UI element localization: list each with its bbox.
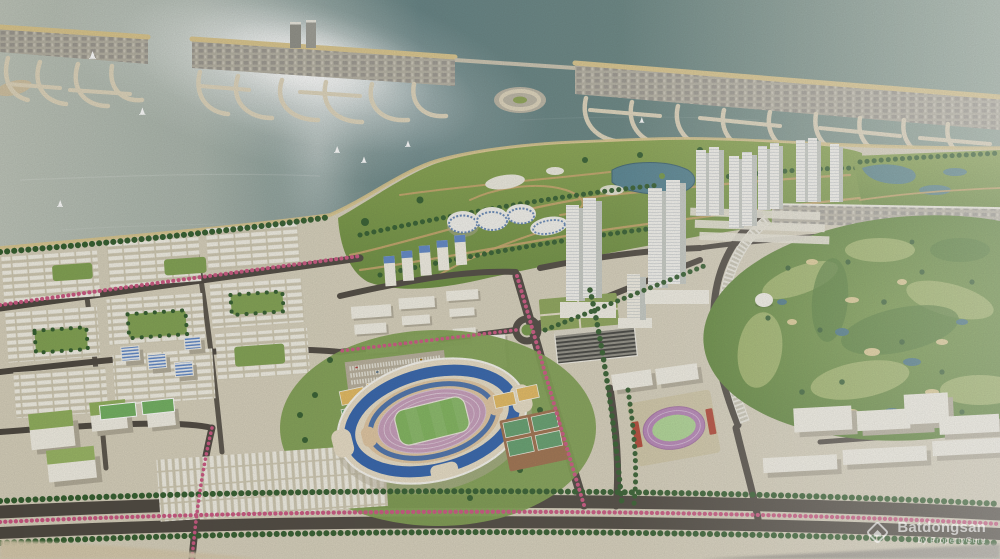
masterplan-render: Batdongsan by PropertyGuru [0,0,1000,559]
atmosphere [0,0,1000,559]
scene-svg [0,0,1000,559]
